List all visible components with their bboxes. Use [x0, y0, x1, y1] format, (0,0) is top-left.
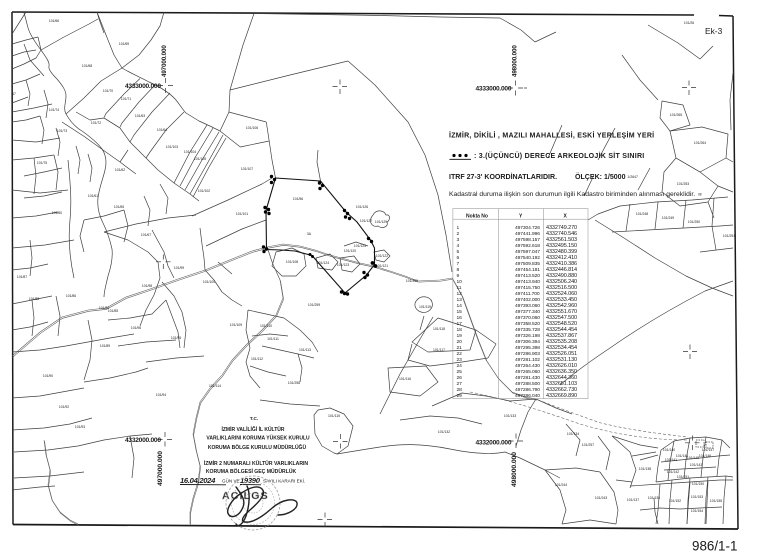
svg-text:101/243: 101/243: [595, 496, 607, 500]
svg-text:497377.340: 497377.340: [515, 309, 540, 315]
svg-text:10: 10: [457, 279, 463, 285]
svg-text:101/98: 101/98: [142, 284, 152, 288]
svg-text:101/74: 101/74: [49, 108, 59, 112]
svg-text:Kadastral duruma ilişkin son d: Kadastral duruma ilişkin son durumun ilg…: [449, 191, 695, 198]
svg-text:497454.181: 497454.181: [515, 267, 540, 273]
svg-text:986/1-1: 986/1-1: [692, 539, 737, 554]
svg-text:İZMİR VALİLİĞİ İL KÜLTÜR: İZMİR VALİLİĞİ İL KÜLTÜR: [221, 425, 284, 433]
svg-text:101/92: 101/92: [59, 405, 69, 409]
svg-text:4332669.890: 4332669.890: [546, 393, 577, 399]
svg-text:11: 11: [457, 285, 462, 291]
svg-text:497358.520: 497358.520: [515, 321, 540, 327]
svg-text:4332000.000: 4332000.000: [476, 440, 512, 447]
svg-text:SAYILI KARARI EKİ.: SAYILI KARARI EKİ.: [263, 478, 305, 484]
svg-text:KORUMA BÖLGE KURULU MÜDÜRLÜĞÜ: KORUMA BÖLGE KURULU MÜDÜRLÜĞÜ: [208, 443, 307, 451]
svg-text:101/122: 101/122: [376, 254, 388, 258]
svg-text:18: 18: [457, 327, 463, 333]
svg-text:497415.750: 497415.750: [515, 285, 540, 291]
svg-text:101/256: 101/256: [288, 381, 300, 385]
svg-text:101/117: 101/117: [433, 348, 445, 352]
svg-text:101/68: 101/68: [82, 64, 92, 68]
svg-text:X: X: [564, 213, 568, 219]
svg-text:101/73: 101/73: [57, 129, 67, 133]
svg-text:101/119: 101/119: [419, 305, 431, 309]
svg-text:101/56: 101/56: [293, 197, 303, 201]
svg-text:101/111: 101/111: [267, 337, 279, 341]
svg-text:5: 5: [457, 249, 460, 255]
svg-text:Ek-3: Ek-3: [705, 26, 723, 36]
svg-text:497000.000: 497000.000: [157, 451, 164, 486]
svg-text:101/145: 101/145: [687, 456, 699, 460]
svg-text:101/250: 101/250: [688, 220, 700, 224]
svg-text:497000.000: 497000.000: [161, 45, 168, 77]
svg-text:47: 47: [12, 92, 16, 96]
svg-text:497295.398: 497295.398: [515, 345, 540, 351]
svg-text:101/72: 101/72: [91, 121, 101, 125]
svg-text:101/140: 101/140: [663, 448, 675, 452]
svg-text:101/61: 101/61: [88, 194, 98, 198]
svg-text:KORUMA BÖLGESİ GEÇ MÜDÜRLÜK: KORUMA BÖLGESİ GEÇ MÜDÜRLÜK: [206, 468, 297, 475]
svg-text:101/93: 101/93: [75, 425, 85, 429]
svg-text:101/62: 101/62: [115, 168, 125, 172]
svg-text:101/136: 101/136: [648, 496, 660, 500]
svg-text:497335.728: 497335.728: [515, 327, 540, 333]
svg-text:101/124: 101/124: [317, 261, 329, 265]
svg-text:101/109: 101/109: [230, 323, 242, 327]
svg-text:101/60: 101/60: [52, 211, 62, 215]
svg-text:101/133: 101/133: [504, 414, 516, 418]
svg-text:101/134: 101/134: [567, 432, 579, 436]
svg-text:101/137: 101/137: [627, 498, 639, 502]
svg-text:101/255: 101/255: [406, 279, 418, 283]
svg-text:101/103: 101/103: [166, 145, 178, 149]
svg-text:101/248: 101/248: [636, 212, 648, 216]
svg-text:497592.618: 497592.618: [515, 243, 540, 249]
svg-text:101/71: 101/71: [121, 97, 131, 101]
svg-text:497598.157: 497598.157: [515, 237, 540, 243]
svg-text:101/96: 101/96: [131, 326, 141, 330]
svg-text:101/102: 101/102: [198, 189, 210, 193]
svg-text:101/106: 101/106: [246, 126, 258, 130]
svg-text:497286.790: 497286.790: [515, 387, 540, 393]
svg-text:Nokta No: Nokta No: [466, 213, 488, 219]
svg-text:15: 15: [457, 309, 463, 315]
svg-text:101/150: 101/150: [692, 482, 704, 486]
svg-text:101/244: 101/244: [555, 483, 567, 487]
svg-text:101/129: 101/129: [375, 220, 387, 224]
svg-text:16.04.2024: 16.04.2024: [180, 476, 216, 485]
svg-text:101/66: 101/66: [49, 19, 59, 23]
svg-text:101/251: 101/251: [723, 234, 735, 238]
svg-text:497597.047: 497597.047: [515, 249, 540, 255]
svg-text:21: 21: [457, 345, 463, 351]
svg-text:101/142: 101/142: [667, 470, 679, 474]
svg-text:19: 19: [457, 333, 463, 339]
svg-text:26: 26: [457, 375, 463, 381]
svg-text:101/104: 101/104: [184, 150, 196, 154]
svg-text:8: 8: [457, 267, 460, 273]
svg-text:22: 22: [457, 351, 463, 357]
svg-text:497286.040: 497286.040: [515, 393, 540, 399]
svg-text:101/69: 101/69: [119, 42, 129, 46]
svg-text:101/94: 101/94: [156, 393, 166, 397]
svg-text:T.C.: T.C.: [250, 416, 258, 421]
svg-text:: 3.(ÜÇÜNCÜ) DERECE ARKEOLOJİK: : 3.(ÜÇÜNCÜ) DERECE ARKEOLOJİK SİT SINIR…: [474, 151, 645, 160]
svg-text:101/121: 101/121: [376, 264, 388, 268]
svg-text:101/147: 101/147: [702, 448, 714, 452]
svg-text:101/90: 101/90: [43, 374, 53, 378]
svg-text:28: 28: [457, 387, 463, 393]
svg-text:101/257: 101/257: [582, 443, 594, 447]
svg-text:497281.102: 497281.102: [515, 357, 540, 363]
svg-text:9: 9: [457, 273, 460, 279]
svg-text:2: 2: [457, 231, 460, 237]
svg-text:497286.903: 497286.903: [515, 351, 540, 357]
svg-text:101/63: 101/63: [135, 114, 145, 118]
svg-text:498000.000: 498000.000: [512, 45, 519, 77]
svg-text:497509.835: 497509.835: [515, 261, 540, 267]
svg-text:101/154: 101/154: [691, 509, 703, 513]
svg-text:Y: Y: [519, 213, 523, 219]
svg-text:101/107: 101/107: [241, 167, 253, 171]
svg-text:29: 29: [457, 393, 463, 399]
svg-text:4333000.000: 4333000.000: [476, 86, 512, 93]
svg-text:101/113: 101/113: [299, 348, 311, 352]
svg-text:1/2647: 1/2647: [628, 175, 638, 179]
svg-text:101/120: 101/120: [344, 249, 356, 253]
svg-text:101/115: 101/115: [328, 414, 340, 418]
svg-text:23: 23: [457, 357, 463, 363]
svg-text:101/264: 101/264: [694, 141, 706, 145]
svg-text:101/65: 101/65: [114, 205, 124, 209]
svg-text:101/259: 101/259: [308, 303, 320, 307]
svg-text:498000.000: 498000.000: [511, 452, 518, 487]
svg-text:4: 4: [457, 243, 460, 249]
svg-text:101/75: 101/75: [37, 161, 47, 165]
svg-text:101/116: 101/116: [399, 377, 411, 381]
svg-text:101/153: 101/153: [691, 495, 703, 499]
svg-text:497411.700: 497411.700: [515, 291, 540, 297]
svg-text:ÖLÇEK: 1/5000: ÖLÇEK: 1/5000: [575, 172, 626, 181]
svg-text:13: 13: [457, 297, 463, 303]
svg-text:İZMİR, DİKİLİ , MAZILI MAHALLE: İZMİR, DİKİLİ , MAZILI MAHALLESİ, ESKİ Y…: [449, 132, 654, 140]
svg-text:497370.060: 497370.060: [515, 315, 540, 321]
svg-text:497304.726: 497304.726: [515, 225, 540, 231]
svg-text:ITRF 27-3' KOORDİNATLARIDIR.: ITRF 27-3' KOORDİNATLARIDIR.: [449, 173, 557, 181]
svg-text:101/152: 101/152: [669, 499, 681, 503]
svg-text:497281.430: 497281.430: [515, 375, 540, 381]
svg-text:497441.996: 497441.996: [515, 231, 540, 237]
svg-text:497393.060: 497393.060: [515, 303, 540, 309]
svg-text:14: 14: [457, 303, 463, 309]
svg-text:1: 1: [457, 225, 460, 231]
svg-text:101/105: 101/105: [194, 157, 206, 161]
svg-text:101/143: 101/143: [690, 463, 702, 467]
svg-text:101/86: 101/86: [66, 294, 76, 298]
svg-text:101/88: 101/88: [29, 297, 39, 301]
svg-text:101/108: 101/108: [286, 260, 298, 264]
svg-text:101/114: 101/114: [209, 384, 221, 388]
svg-text:101/127: 101/127: [360, 219, 372, 223]
svg-text:101/253: 101/253: [677, 182, 689, 186]
svg-text:101/95: 101/95: [171, 336, 181, 340]
svg-text:497288.500: 497288.500: [515, 381, 540, 387]
svg-text:3A: 3A: [307, 232, 312, 236]
svg-text:101/123: 101/123: [337, 263, 349, 267]
svg-text:25: 25: [457, 369, 463, 375]
svg-text:27: 27: [457, 381, 463, 387]
svg-text:101/110: 101/110: [260, 324, 272, 328]
svg-text:101/249: 101/249: [662, 216, 674, 220]
svg-text:20: 20: [457, 339, 463, 345]
svg-text:101/87: 101/87: [17, 275, 27, 279]
svg-text:101/100: 101/100: [203, 280, 215, 284]
svg-text:497413.940: 497413.940: [515, 279, 540, 285]
svg-text:497306.394: 497306.394: [515, 339, 540, 345]
svg-text:7: 7: [457, 261, 460, 267]
svg-text:101/67: 101/67: [141, 233, 151, 237]
svg-text:08: 08: [698, 193, 702, 197]
svg-text:101/26: 101/26: [684, 21, 694, 25]
svg-text:497402.000: 497402.000: [515, 297, 540, 303]
svg-text:VARLIKLARINI KORUMA YÜKSEK KUR: VARLIKLARINI KORUMA YÜKSEK KURULU: [206, 435, 310, 442]
svg-text:101/89: 101/89: [100, 344, 110, 348]
svg-text:497326.198: 497326.198: [515, 333, 540, 339]
svg-text:497413.520: 497413.520: [515, 273, 540, 279]
svg-text:17: 17: [457, 321, 463, 327]
svg-text:101/64: 101/64: [157, 128, 167, 132]
svg-text:101/141: 101/141: [665, 458, 677, 462]
svg-text:101/70: 101/70: [103, 89, 113, 93]
svg-text:3: 3: [457, 237, 460, 243]
svg-text:4333000.000: 4333000.000: [125, 83, 161, 90]
svg-text:497264.430: 497264.430: [515, 363, 540, 369]
svg-text:101/101: 101/101: [236, 212, 248, 216]
svg-text:101/112: 101/112: [251, 357, 263, 361]
svg-text:101/126: 101/126: [356, 205, 368, 209]
svg-text:16: 16: [457, 315, 463, 321]
svg-text:12: 12: [457, 291, 463, 297]
svg-text:497265.060: 497265.060: [515, 369, 540, 375]
svg-text:101/99: 101/99: [174, 266, 184, 270]
svg-text:6: 6: [457, 255, 460, 261]
svg-text:101/155: 101/155: [710, 499, 722, 503]
svg-text:101/151: 101/151: [677, 475, 689, 479]
svg-text:24: 24: [457, 363, 463, 369]
svg-text:101/265: 101/265: [670, 113, 682, 117]
svg-text:İZMİR 2 NUMARALI KÜLTÜR VARLIK: İZMİR 2 NUMARALI KÜLTÜR VARLIKLARIN: [204, 460, 309, 467]
svg-text:101/146: 101/146: [699, 454, 711, 458]
svg-text:497540.192: 497540.192: [515, 255, 540, 261]
svg-text:101/125: 101/125: [354, 244, 366, 248]
svg-text:4332000.000: 4332000.000: [125, 437, 161, 444]
svg-text:101/118: 101/118: [433, 327, 445, 331]
svg-text:101/132: 101/132: [438, 430, 450, 434]
svg-text:101/138: 101/138: [639, 467, 651, 471]
svg-text:101/85: 101/85: [108, 309, 118, 313]
svg-text:GÜN VE: GÜN VE: [222, 478, 240, 484]
